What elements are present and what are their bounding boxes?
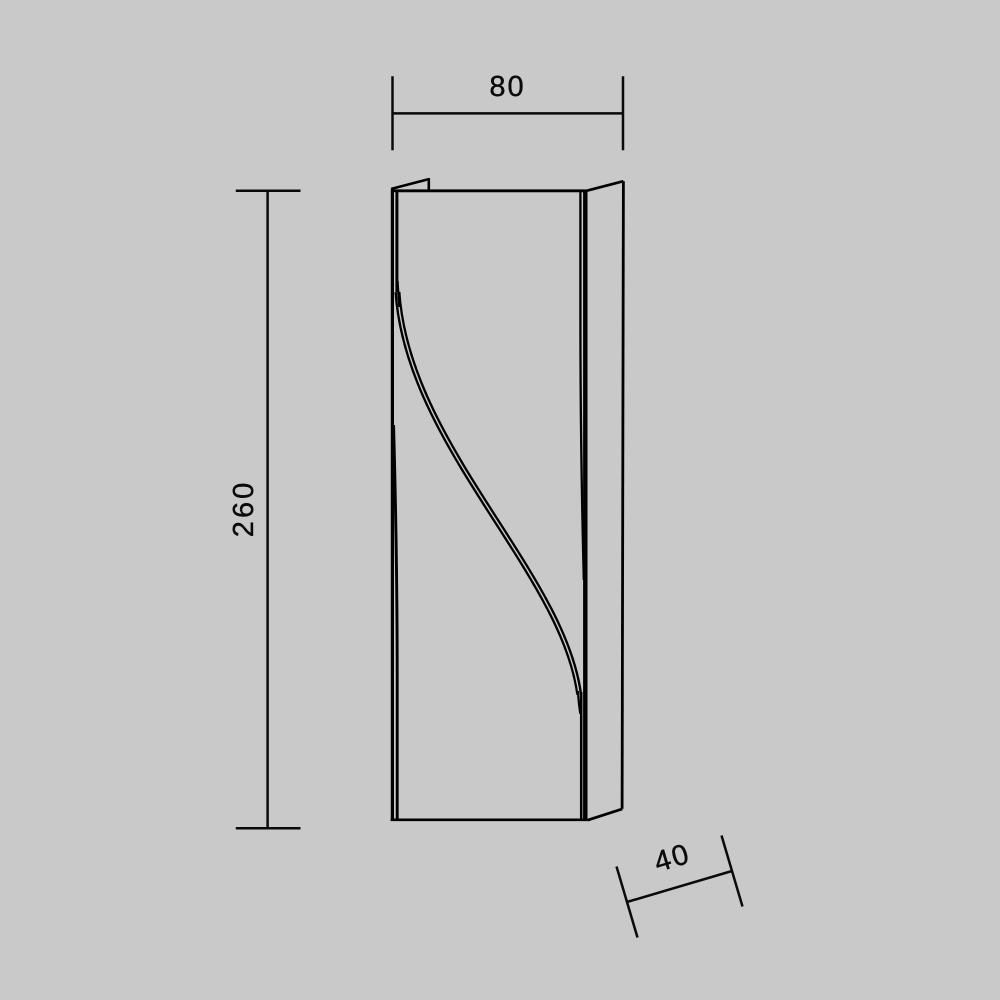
- svg-text:80: 80: [489, 71, 525, 103]
- svg-text:260: 260: [228, 480, 260, 537]
